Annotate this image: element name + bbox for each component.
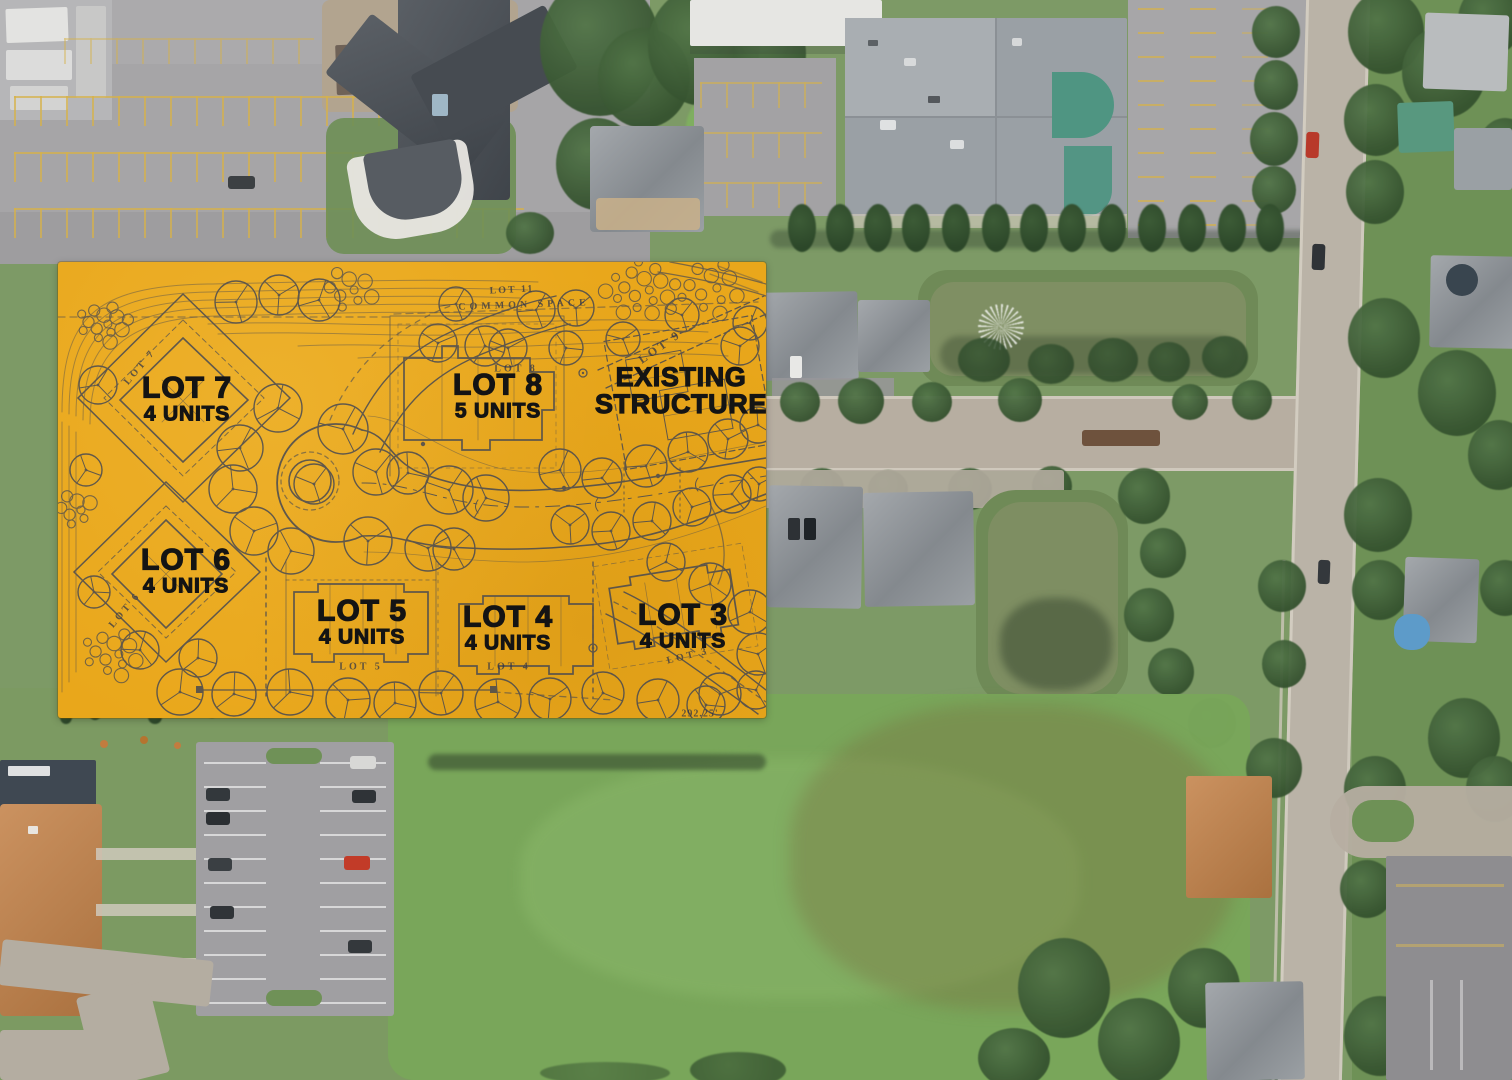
plan-annotation-lot-6: LOT 6 [107, 590, 143, 630]
lot-label-subtitle: 4 UNITS [638, 631, 728, 652]
lot-label-subtitle: 4 UNITS [317, 627, 407, 648]
lot-label-subtitle: 4 UNITS [142, 404, 232, 425]
lot-label-lot-3: LOT 34 UNITS [638, 601, 728, 652]
lot-label-existing: EXISTINGSTRUCTURE [595, 364, 767, 418]
lot-label-lot-4: LOT 44 UNITS [463, 603, 553, 654]
plan-annotation-lot-5: LOT 5 [339, 662, 382, 673]
lot-label-title: LOT 5 [317, 597, 407, 627]
lot-label-title: LOT 4 [463, 603, 553, 633]
plan-annotation-lot-8: LOT 8 [494, 364, 537, 375]
lot-label-lot-8: LOT 85 UNITS [453, 371, 543, 422]
plan-annotation-292-25-: 292.25' [681, 709, 718, 720]
lot-label-lot-7: LOT 74 UNITS [142, 374, 232, 425]
plan-annotation-lot-11: LOT 11 [489, 283, 534, 296]
lot-label-subtitle: 4 UNITS [463, 633, 553, 654]
plan-annotation-lot-4: LOT 4 [487, 662, 530, 673]
lot-label-lot-5: LOT 54 UNITS [317, 597, 407, 648]
lot-label-lot-6: LOT 64 UNITS [141, 546, 231, 597]
aerial-site-plan-image: LOT 74 UNITSLOT 85 UNITSEXISTINGSTRUCTUR… [0, 0, 1512, 1080]
lot-label-title: LOT 7 [142, 374, 232, 404]
lot-label-title: LOT 8 [453, 371, 543, 401]
plan-annotation-common-space: COMMON SPACE [458, 297, 590, 313]
lot-label-subtitle: 4 UNITS [141, 576, 231, 597]
lot-label-title: LOT 6 [141, 546, 231, 576]
lot-label-title: LOT 3 [638, 601, 728, 631]
lot-label-title: EXISTING [595, 364, 767, 391]
lot-label-subtitle: 5 UNITS [453, 401, 543, 422]
overlay-labels-layer: LOT 74 UNITSLOT 85 UNITSEXISTINGSTRUCTUR… [0, 0, 1512, 1080]
lot-label-subtitle: STRUCTURE [595, 391, 767, 418]
